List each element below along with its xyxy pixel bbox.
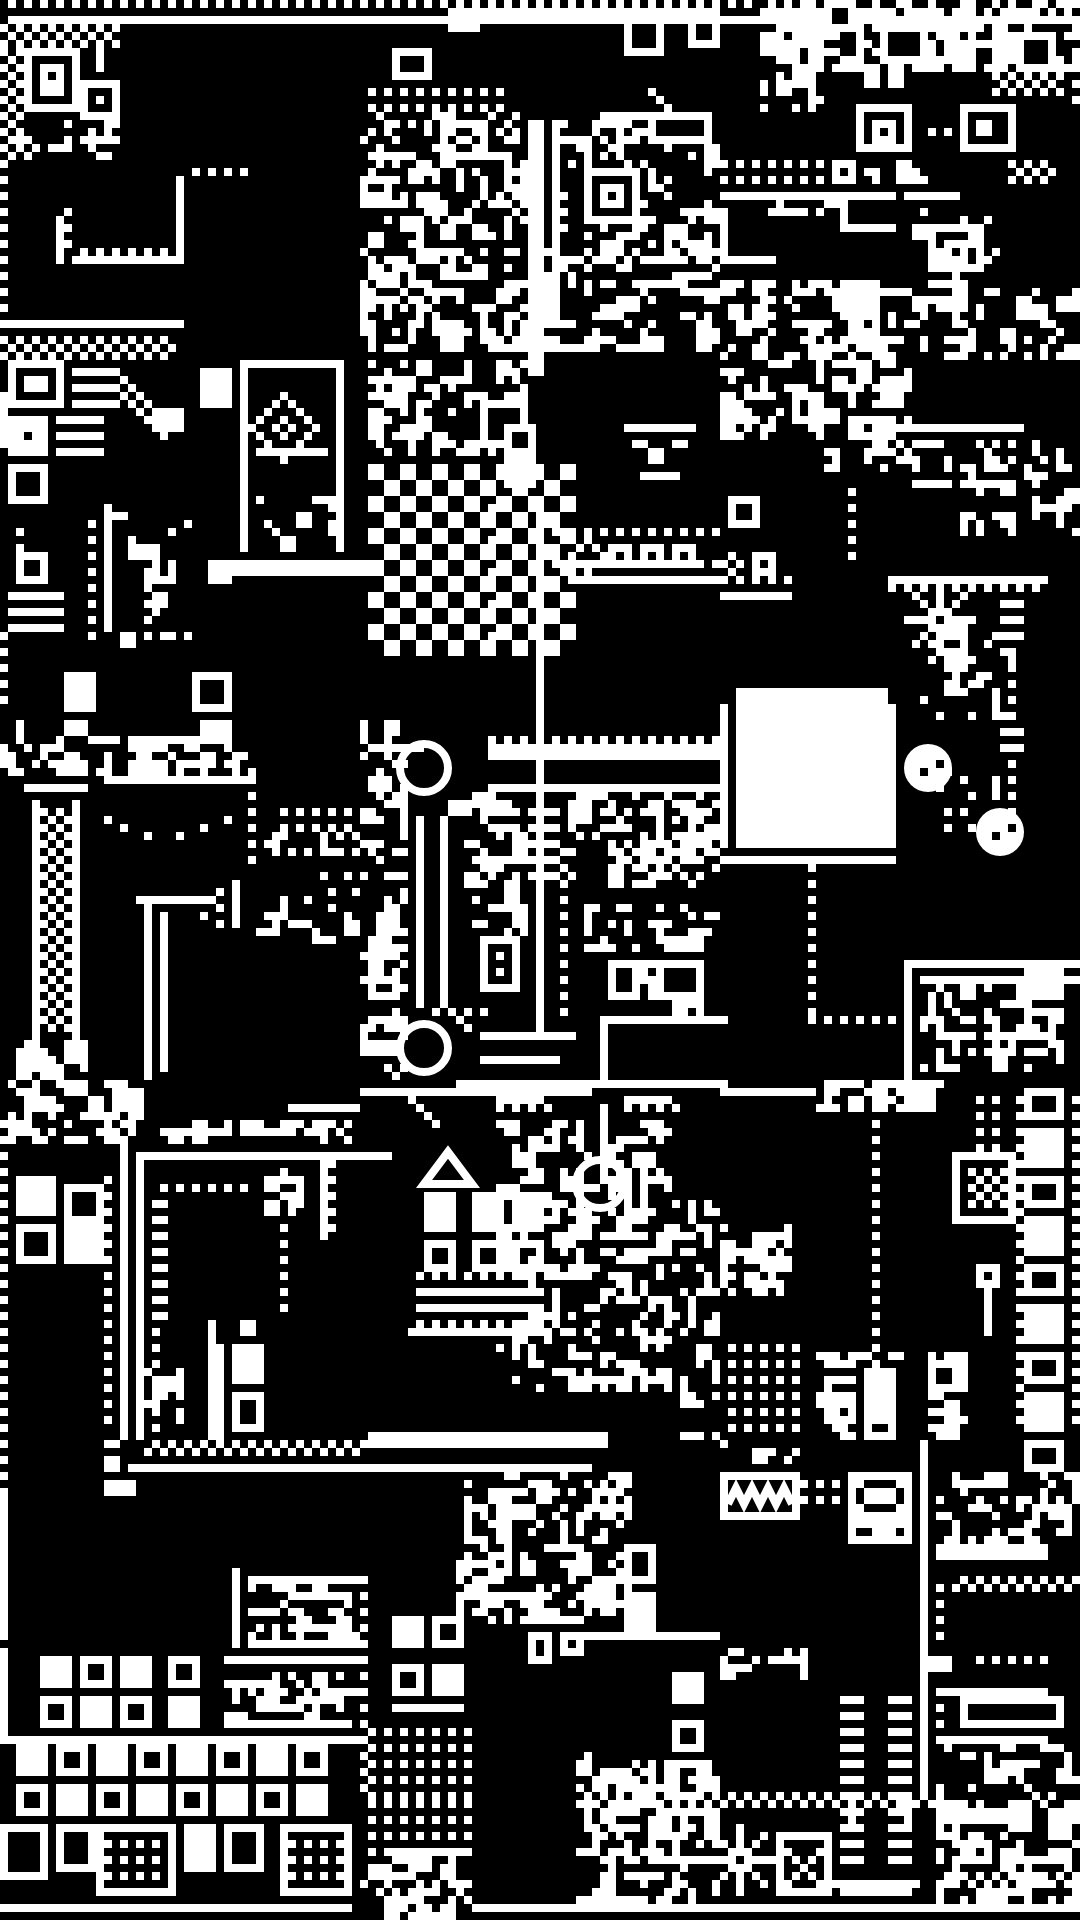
pixel-art-canvas — [0, 0, 1080, 1920]
screenshot-root — [0, 0, 1080, 1920]
